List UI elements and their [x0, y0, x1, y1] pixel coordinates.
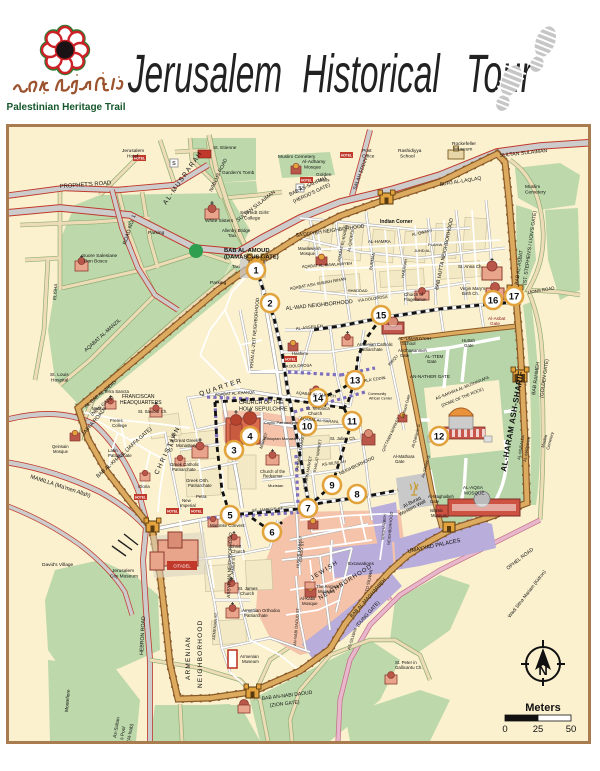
svg-text:Allenby Bridge: Allenby Bridge	[222, 228, 251, 233]
svg-text:Muslim: Muslim	[525, 184, 540, 190]
svg-text:Post: Post	[362, 148, 372, 154]
svg-text:Community: Community	[368, 392, 386, 396]
svg-text:HOTEL: HOTEL	[167, 509, 178, 513]
svg-text:Rockefeller: Rockefeller	[452, 141, 476, 147]
svg-text:AN-NATHER GATE: AN-NATHER GATE	[410, 374, 450, 379]
svg-text:11: 11	[347, 416, 358, 427]
svg-text:PLAHIA: PLAHIA	[428, 242, 443, 247]
svg-text:Parking: Parking	[148, 230, 165, 236]
svg-text:Suore Salesiane: Suore Salesiane	[82, 253, 118, 259]
svg-text:4: 4	[247, 431, 253, 442]
svg-text:St. Anna Ch.: St. Anna Ch.	[458, 264, 483, 269]
svg-text:NEIGHBORHOOD: NEIGHBORHOOD	[197, 619, 204, 688]
svg-text:Hotel: Hotel	[127, 154, 138, 160]
svg-text:Historical: Historical	[302, 43, 440, 104]
svg-text:Patriarchate: Patriarchate	[359, 347, 383, 352]
svg-text:Museum: Museum	[242, 659, 259, 664]
svg-text:8: 8	[354, 489, 359, 500]
svg-text:Museum: Museum	[454, 147, 472, 153]
svg-text:CHURCH OF THE: CHURCH OF THE	[239, 400, 284, 406]
svg-text:St. Etienne: St. Etienne	[213, 145, 237, 151]
svg-text:Patriarchate: Patriarchate	[188, 483, 212, 488]
svg-text:Monastery: Monastery	[176, 443, 197, 448]
svg-text:St. Saviour Ch.: St. Saviour Ch.	[138, 409, 168, 414]
svg-text:Imperial: Imperial	[180, 503, 196, 508]
svg-text:Patriarchate: Patriarchate	[172, 467, 196, 472]
svg-text:1: 1	[253, 265, 259, 276]
svg-text:St. Julien Ch.: St. Julien Ch.	[330, 436, 356, 441]
svg-text:Gate: Gate	[400, 353, 410, 358]
svg-text:Birth Ch.: Birth Ch.	[462, 291, 479, 296]
svg-text:School: School	[402, 341, 415, 346]
svg-text:12: 12	[434, 431, 445, 442]
svg-text:Excavations: Excavations	[348, 561, 374, 567]
svg-text:Muristan: Muristan	[268, 483, 283, 488]
svg-text:0: 0	[502, 724, 507, 735]
svg-text:6: 6	[269, 527, 274, 538]
svg-text:City Museum: City Museum	[110, 574, 138, 580]
svg-text:School: School	[400, 154, 415, 160]
svg-text:HOTEL: HOTEL	[341, 153, 352, 157]
svg-text:Museum: Museum	[431, 513, 448, 518]
svg-text:Palestinian Heritage Trail: Palestinian Heritage Trail	[7, 102, 126, 113]
svg-text:Taxi: Taxi	[232, 264, 240, 269]
svg-text:Jerusalem: Jerusalem	[112, 568, 134, 574]
svg-text:Museum: Museum	[318, 589, 335, 594]
svg-text:Indian Corner: Indian Corner	[380, 219, 413, 225]
svg-text:Cemetery: Cemetery	[525, 190, 546, 196]
svg-text:Walls: Walls	[318, 178, 330, 184]
svg-text:25: 25	[533, 724, 544, 735]
svg-text:Mosque: Mosque	[304, 165, 321, 171]
svg-text:13: 13	[350, 375, 361, 386]
svg-text:Rashidiyya: Rashidiyya	[398, 148, 422, 154]
svg-text:9: 9	[329, 480, 334, 491]
svg-text:(DAMASCUS GATE): (DAMASCUS GATE)	[224, 255, 279, 261]
svg-text:Gallicantu Ch.: Gallicantu Ch.	[395, 665, 423, 670]
svg-text:Don Bosco: Don Bosco	[84, 259, 108, 265]
svg-text:CITADEL: CITADEL	[173, 564, 191, 569]
svg-text:Ethiopian Monastery: Ethiopian Monastery	[264, 436, 300, 441]
svg-text:White Sisters: White Sisters	[205, 218, 234, 224]
svg-text:HOTEL: HOTEL	[191, 509, 202, 513]
svg-text:HOTEL: HOTEL	[135, 495, 146, 499]
svg-text:Taxi: Taxi	[228, 233, 236, 238]
svg-text:Flagellation: Flagellation	[404, 297, 427, 302]
svg-text:AL-HAMRA: AL-HAMRA	[368, 239, 391, 244]
svg-text:Mosque: Mosque	[300, 251, 316, 256]
svg-text:Gloria: Gloria	[138, 484, 150, 489]
svg-text:College: College	[244, 216, 261, 222]
svg-text:5: 5	[227, 510, 233, 521]
svg-text:SHADDAD: SHADDAD	[348, 288, 368, 293]
svg-text:AL-AQSA: AL-AQSA	[463, 485, 484, 490]
svg-text:Hospital: Hospital	[51, 378, 68, 384]
svg-text:Gate: Gate	[427, 359, 437, 364]
svg-text:Church: Church	[308, 411, 323, 416]
svg-text:JUHD AL.: JUHD AL.	[414, 248, 432, 253]
svg-text:HOLY SEPULCHRE: HOLY SEPULCHRE	[239, 407, 288, 413]
svg-text:Gate: Gate	[464, 343, 474, 348]
svg-text:Patriarchate: Patriarchate	[108, 453, 132, 458]
svg-text:Jerusalem: Jerusalem	[127, 43, 282, 104]
svg-text:Ma'mal: Ma'mal	[92, 406, 106, 411]
svg-text:Schmidt Girls': Schmidt Girls'	[240, 210, 270, 216]
svg-text:Office: Office	[362, 154, 375, 160]
svg-text:7: 7	[305, 503, 310, 514]
svg-text:Church: Church	[240, 591, 255, 596]
svg-text:Al-Adhamy: Al-Adhamy	[302, 159, 326, 165]
svg-text:Terra Sancta: Terra Sancta	[104, 389, 129, 394]
svg-text:Jerusalem: Jerusalem	[122, 148, 144, 154]
svg-text:BAB AL-AMOUD: BAB AL-AMOUD	[224, 248, 270, 254]
svg-text:College: College	[112, 423, 127, 428]
svg-text:Church: Church	[231, 549, 246, 554]
svg-text:Gate: Gate	[395, 459, 405, 464]
svg-text:50: 50	[566, 724, 577, 735]
svg-text:Garden's Tomb: Garden's Tomb	[222, 170, 255, 176]
svg-text:HEADQUARTERS: HEADQUARTERS	[120, 400, 162, 406]
svg-text:Golden: Golden	[316, 172, 332, 178]
svg-text:Patriarchate: Patriarchate	[244, 613, 268, 618]
svg-text:Hashimi: Hashimi	[292, 351, 308, 356]
svg-text:St. Louis: St. Louis	[50, 372, 69, 378]
svg-text:Mosque: Mosque	[302, 601, 318, 606]
svg-text:16: 16	[488, 295, 499, 306]
svg-text:David's Village: David's Village	[42, 562, 74, 568]
svg-text:Redeemer: Redeemer	[263, 474, 283, 479]
svg-text:African Center: African Center	[369, 397, 393, 401]
svg-text:S: S	[172, 161, 176, 167]
svg-text:HOTEL: HOTEL	[285, 357, 296, 361]
svg-text:10: 10	[302, 421, 313, 432]
svg-text:Coptic Patriarchate: Coptic Patriarchate	[264, 420, 299, 425]
svg-text:Meters: Meters	[525, 702, 560, 714]
svg-text:17: 17	[509, 291, 520, 302]
svg-text:Gate: Gate	[430, 499, 440, 504]
svg-text:Petra: Petra	[196, 494, 207, 499]
svg-text:Parking: Parking	[210, 280, 227, 286]
svg-text:N: N	[538, 663, 547, 678]
svg-text:ARMENIAN: ARMENIAN	[185, 636, 192, 680]
svg-text:Mosque: Mosque	[53, 449, 69, 454]
svg-text:MOSQUE: MOSQUE	[464, 491, 484, 496]
svg-text:Gate: Gate	[490, 321, 500, 326]
svg-text:2: 2	[267, 298, 272, 309]
svg-text:15: 15	[376, 310, 387, 321]
svg-text:Maronite Convent: Maronite Convent	[210, 523, 245, 528]
svg-text:3: 3	[231, 445, 236, 456]
